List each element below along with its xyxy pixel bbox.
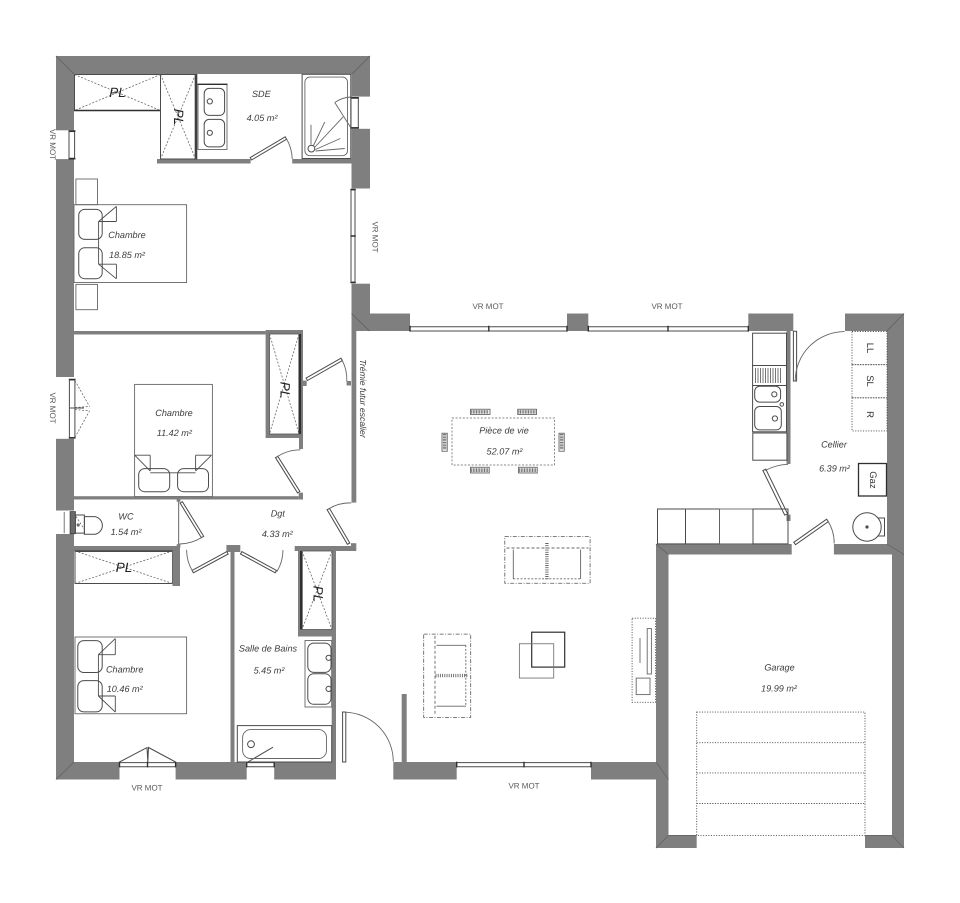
svg-text:VR MOT: VR MOT: [472, 302, 503, 311]
svg-text:4.05 m²: 4.05 m²: [247, 113, 279, 123]
svg-text:11.42 m²: 11.42 m²: [157, 428, 193, 438]
svg-text:LL: LL: [864, 343, 875, 354]
svg-text:5.45 m²: 5.45 m²: [254, 666, 286, 676]
svg-text:Trémie futur escalier: Trémie futur escalier: [358, 359, 368, 439]
svg-text:VR MOT: VR MOT: [651, 302, 682, 311]
svg-text:Pièce de vie: Pièce de vie: [479, 426, 529, 436]
svg-text:Cellier: Cellier: [821, 440, 848, 450]
svg-text:4.33 m²: 4.33 m²: [262, 529, 294, 539]
svg-text:PL: PL: [109, 85, 126, 100]
svg-text:PL: PL: [171, 109, 186, 126]
svg-text:Chambre: Chambre: [106, 664, 143, 674]
svg-text:6.39 m²: 6.39 m²: [819, 464, 851, 474]
svg-text:Chambre: Chambre: [155, 408, 192, 418]
svg-text:1.54 m²: 1.54 m²: [111, 527, 143, 537]
svg-text:Gaz: Gaz: [867, 471, 878, 489]
svg-text:VR MOT: VR MOT: [131, 784, 162, 793]
svg-text:Salle de Bains: Salle de Bains: [239, 644, 298, 654]
svg-text:WC: WC: [118, 512, 134, 522]
svg-text:Chambre: Chambre: [108, 230, 145, 240]
svg-text:52.07 m²: 52.07 m²: [487, 447, 524, 457]
svg-text:Garage: Garage: [764, 663, 794, 673]
svg-text:PL: PL: [278, 382, 293, 399]
svg-text:18.85 m²: 18.85 m²: [109, 250, 146, 260]
svg-text:PL: PL: [116, 560, 133, 575]
svg-text:VR MOT: VR MOT: [508, 782, 539, 791]
svg-text:VR MOT: VR MOT: [370, 221, 379, 252]
svg-text:VR MOT: VR MOT: [48, 129, 57, 160]
svg-text:SDE: SDE: [252, 89, 272, 99]
svg-text:10.46 m²: 10.46 m²: [107, 684, 144, 694]
svg-text:19.99 m²: 19.99 m²: [761, 684, 798, 694]
svg-text:R: R: [864, 411, 875, 418]
svg-text:SL: SL: [864, 375, 875, 387]
svg-text:VR MOT: VR MOT: [48, 392, 57, 423]
svg-text:PL: PL: [311, 586, 326, 603]
svg-text:Dgt: Dgt: [271, 509, 286, 519]
